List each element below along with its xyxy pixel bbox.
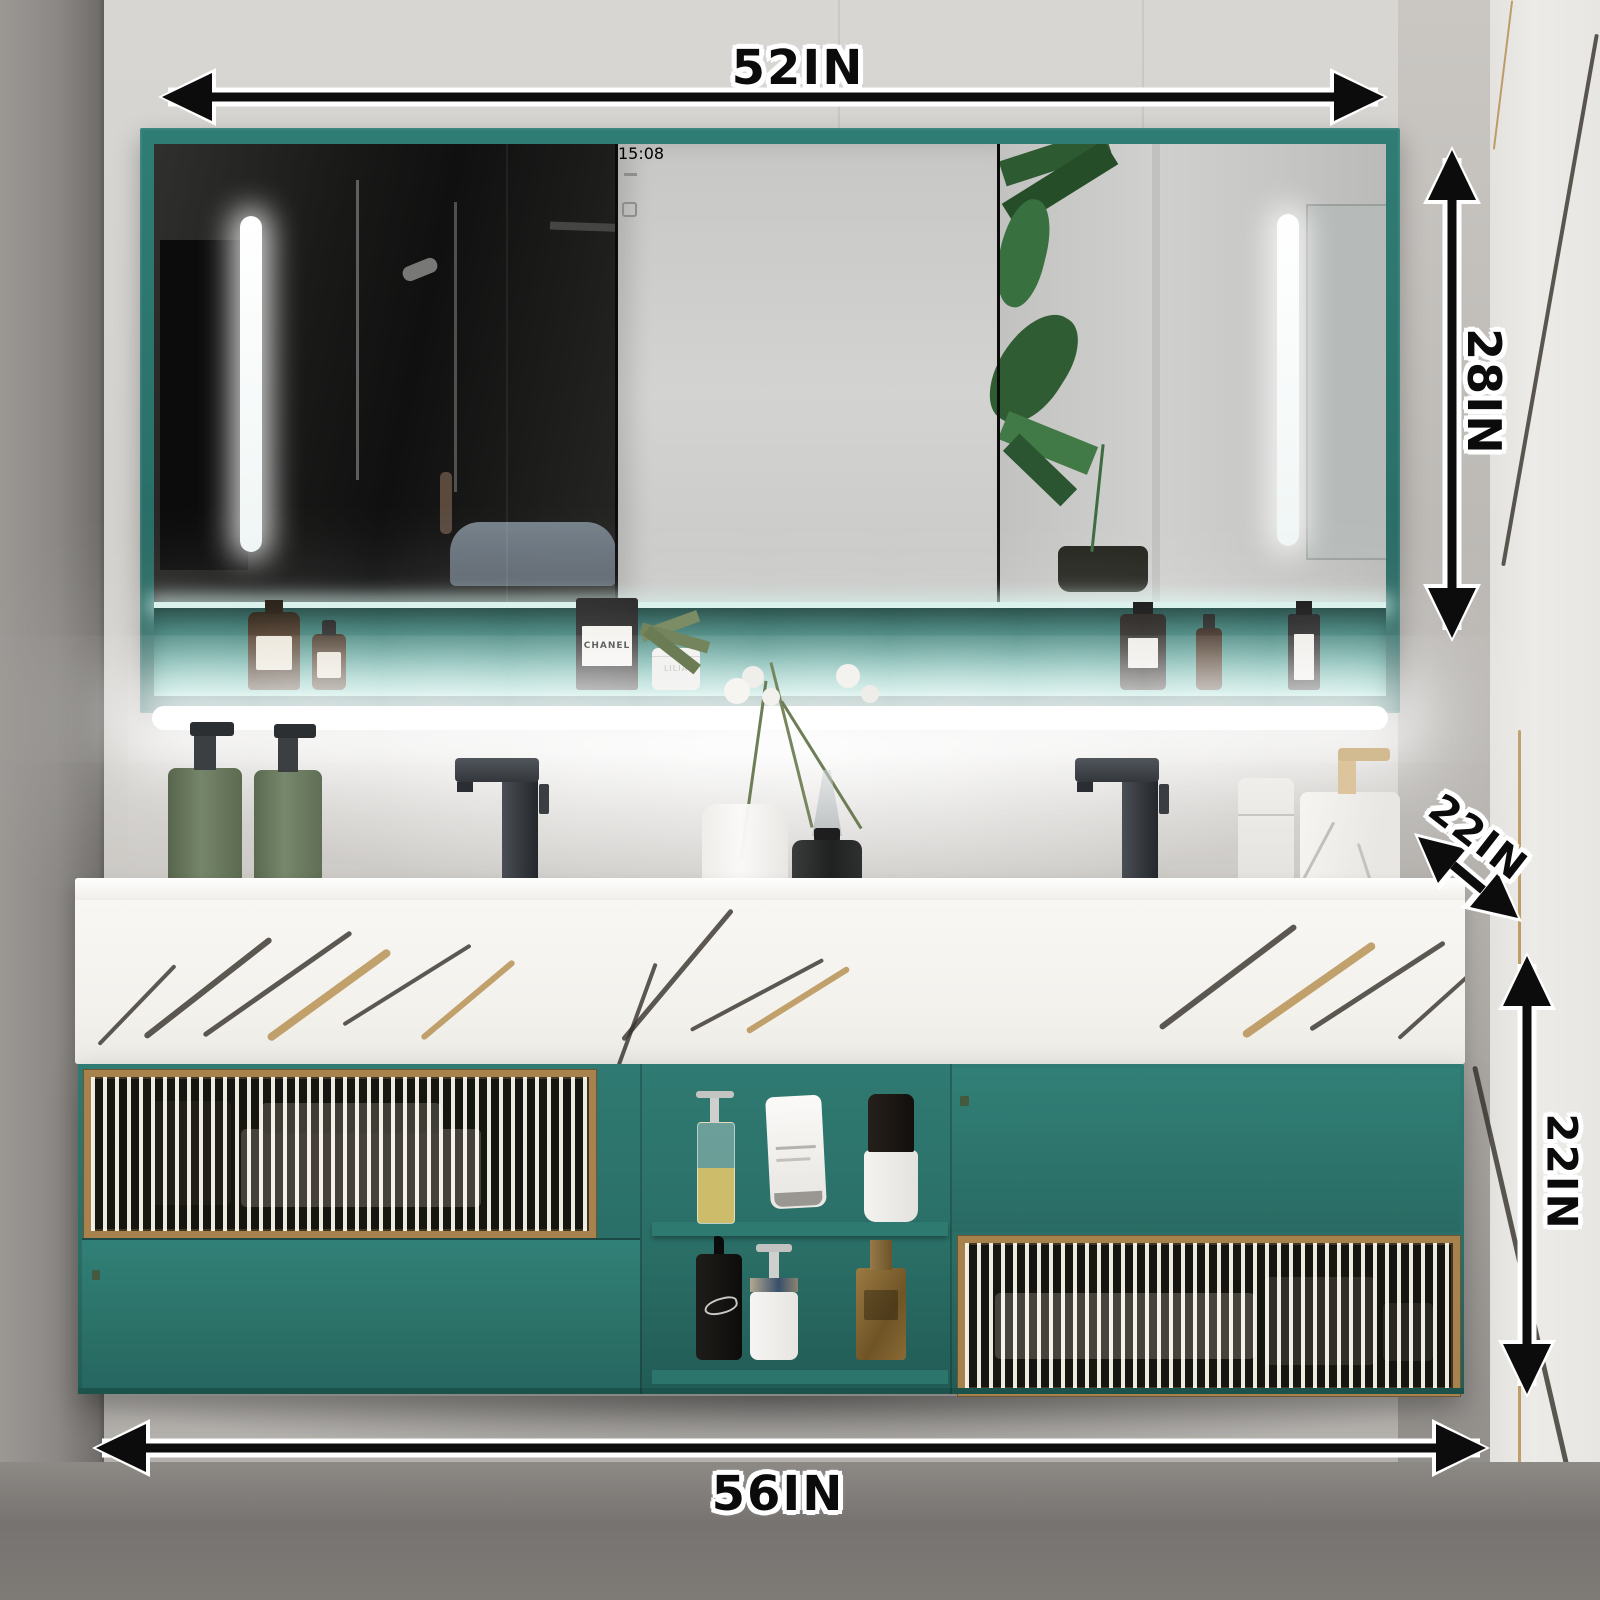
cabinet-base-edge <box>78 1388 1464 1394</box>
cabinet-seam <box>640 1064 642 1394</box>
cabinet-floor-shadow <box>86 1396 1456 1452</box>
center-shelf-board <box>652 1222 948 1236</box>
bathroom-vanity-product-photo: 15:08 <box>0 0 1600 1600</box>
black-pump-bottle <box>696 1254 742 1360</box>
fluted-glass-texture <box>91 1077 589 1231</box>
countertop <box>75 878 1465 1064</box>
fluted-glass-texture <box>965 1243 1453 1389</box>
dim-label-mirror-width: 52IN <box>732 40 865 96</box>
drawer-right <box>952 1068 1460 1232</box>
gold-perfume-bottle <box>856 1268 906 1360</box>
drawer-handle <box>82 1240 110 1312</box>
dim-label-cabinet-height: 22IN <box>1538 1113 1587 1230</box>
cabinet-seam <box>950 1064 952 1394</box>
dim-label-vanity-width: 56IN <box>712 1466 845 1522</box>
drawer-left <box>82 1238 640 1390</box>
dim-label-mirror-height: 28IN <box>1457 328 1511 456</box>
countertop-surface <box>75 878 1465 900</box>
clear-pump-bottle <box>697 1122 735 1224</box>
fluted-glass-door-left <box>84 1070 596 1238</box>
drawer-handle <box>952 1068 978 1134</box>
white-pump-bottle <box>750 1292 798 1360</box>
fluted-glass-door-right <box>958 1236 1460 1396</box>
black-cap-bottle <box>864 1150 918 1222</box>
countertop-face <box>75 900 1465 1064</box>
vanity-cabinet <box>78 1064 1464 1394</box>
cosmetic-tube <box>765 1095 827 1210</box>
center-shelf-base <box>652 1370 948 1384</box>
